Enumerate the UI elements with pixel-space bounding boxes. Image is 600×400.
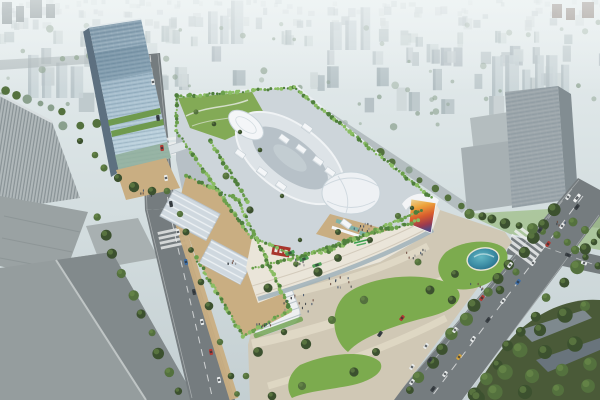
tree-highlight <box>198 279 201 282</box>
tree-highlight <box>472 392 479 399</box>
hedge-shrub <box>245 215 248 218</box>
hedge-shrub <box>254 88 257 91</box>
hedge-shrub <box>220 191 223 194</box>
tree-highlight <box>177 211 180 214</box>
hedge-shrub <box>258 266 260 268</box>
pedestrian <box>284 302 285 304</box>
pedestrian <box>266 323 267 325</box>
tree-highlight <box>228 373 231 376</box>
tree-highlight <box>368 237 371 240</box>
tree <box>92 119 101 128</box>
bg-tree <box>66 102 70 106</box>
hedge-shrub <box>281 314 284 317</box>
tree <box>406 166 413 173</box>
hedge-shrub <box>174 93 178 97</box>
tree-highlight <box>503 341 508 346</box>
tree-highlight <box>206 302 210 306</box>
tree-highlight <box>410 206 412 208</box>
tree-highlight <box>461 314 468 321</box>
hedge-shrub <box>216 92 219 95</box>
hedge-shrub <box>427 194 431 198</box>
hedge-shrub <box>231 315 233 317</box>
pedestrian <box>335 279 336 281</box>
tree-highlight <box>549 204 555 210</box>
hedge-shrub <box>183 140 185 142</box>
hedge-shrub <box>215 149 219 153</box>
hedge-shrub <box>273 246 275 248</box>
tree-highlight <box>335 255 339 259</box>
tree <box>76 122 84 130</box>
hedge-shrub <box>232 320 235 323</box>
pedestrian <box>482 288 483 290</box>
pedestrian <box>368 228 369 230</box>
tree-highlight <box>517 328 522 333</box>
pedestrian <box>302 307 303 309</box>
pedestrian <box>559 224 560 226</box>
tree-highlight <box>488 215 492 219</box>
hedge-shrub <box>307 98 310 101</box>
bg-tree <box>377 95 382 100</box>
pedestrian <box>371 225 372 227</box>
hedge-shrub <box>279 259 283 263</box>
hedge-shrub <box>316 106 319 109</box>
hedge-shrub <box>418 186 420 188</box>
hedge-shrub <box>194 255 199 260</box>
hedge-shrub <box>367 146 371 150</box>
hedge-shrub <box>201 169 205 173</box>
hedge-shrub <box>411 213 413 215</box>
tree-highlight <box>591 239 594 242</box>
pedestrian <box>329 277 330 279</box>
hedge-shrub <box>404 177 408 181</box>
hedge-shrub <box>313 252 316 255</box>
hedge-shrub <box>343 125 346 128</box>
pedestrian <box>367 223 368 225</box>
hedge-shrub <box>299 91 303 95</box>
hedge-shrub <box>273 262 275 264</box>
tree-highlight <box>94 214 98 218</box>
pedestrian <box>143 189 144 191</box>
tree-highlight <box>553 385 559 391</box>
tree-highlight <box>254 348 259 353</box>
hedge-shrub <box>292 257 295 260</box>
hedge-shrub <box>199 264 202 267</box>
tree-highlight <box>407 387 411 391</box>
tree-highlight <box>102 231 107 236</box>
hedge-shrub <box>194 178 196 180</box>
pedestrian <box>286 300 287 302</box>
aerial-render-image <box>0 0 600 400</box>
tree-highlight <box>92 152 95 155</box>
hedge-shrub <box>214 287 216 289</box>
hedge-shrub <box>249 225 251 227</box>
pedestrian <box>303 264 304 266</box>
hedge-shrub <box>175 117 178 120</box>
tree-highlight <box>583 254 586 257</box>
pedestrian <box>151 195 152 197</box>
hedge-shrub <box>228 91 232 95</box>
tree-highlight <box>494 361 499 366</box>
hedge-shrub <box>221 158 225 162</box>
hedge-shrub <box>398 226 400 228</box>
car <box>160 145 164 151</box>
pedestrian <box>422 253 423 255</box>
hedge-shrub <box>417 210 420 213</box>
tree-highlight <box>554 232 558 236</box>
bg-tree <box>390 123 397 130</box>
hedge-shrub <box>208 92 210 94</box>
hedge-shrub <box>368 233 370 235</box>
hedge-shrub <box>185 143 187 145</box>
tree-highlight <box>520 248 526 254</box>
car-glass <box>165 177 168 179</box>
hedge-shrub <box>239 189 244 194</box>
hedge-shrub <box>334 245 337 248</box>
pedestrian <box>359 227 360 229</box>
tree-highlight <box>449 296 453 300</box>
hedge-shrub <box>270 262 273 265</box>
hedge-shrub <box>275 246 279 250</box>
tree-highlight <box>489 386 497 394</box>
tree-highlight <box>539 346 546 353</box>
tree-highlight <box>108 249 113 254</box>
bg-tree <box>484 97 489 102</box>
hedge-shrub <box>345 128 348 131</box>
tree-highlight <box>543 294 547 298</box>
bg-building <box>365 98 374 113</box>
hedge-shrub <box>247 90 250 93</box>
tree-highlight <box>535 325 541 331</box>
hedge-shrub <box>420 188 423 191</box>
tree <box>417 177 423 183</box>
hedge-shrub <box>320 251 323 254</box>
hedge-shrub <box>255 266 257 268</box>
tree <box>23 95 32 104</box>
pedestrian <box>313 299 314 301</box>
hedge-shrub <box>409 222 413 226</box>
pedestrian <box>358 230 359 232</box>
tree-highlight <box>396 213 399 216</box>
hedge-shrub <box>198 94 202 98</box>
aerial-city-render <box>0 0 600 400</box>
pedestrian <box>360 225 361 227</box>
hedge-shrub <box>197 162 200 165</box>
hedge-shrub <box>267 88 270 91</box>
pedestrian <box>295 259 296 261</box>
tree-highlight <box>361 296 365 300</box>
hedge-shrub <box>282 258 286 262</box>
pedestrian <box>299 302 300 304</box>
hedge-shrub <box>238 187 240 189</box>
pedestrian <box>340 286 341 288</box>
tree-highlight <box>314 268 319 273</box>
pedestrian <box>425 250 426 252</box>
hedge-shrub <box>247 233 250 236</box>
hedge-shrub <box>250 236 253 239</box>
tree <box>58 108 65 115</box>
tree-highlight <box>373 349 377 353</box>
hedge-shrub <box>212 144 214 146</box>
hedge-shrub <box>416 218 420 222</box>
bg-tree <box>436 123 440 127</box>
pedestrian <box>269 322 270 324</box>
hedge-shrub <box>227 311 231 315</box>
hedge-shrub <box>229 209 233 213</box>
right-wing-block <box>461 141 515 212</box>
hedge-shrub <box>283 296 287 300</box>
pedestrian <box>261 326 262 328</box>
tree-highlight <box>329 317 333 321</box>
pedestrian <box>565 222 566 224</box>
pedestrian <box>148 195 149 197</box>
tree-highlight <box>115 175 119 179</box>
tree-highlight <box>415 259 419 263</box>
hedge-shrub <box>252 232 257 237</box>
pedestrian <box>303 294 304 296</box>
bg-building-side <box>489 96 494 115</box>
hedge-shrub <box>240 221 245 226</box>
pedestrian <box>232 262 233 264</box>
hedge-shrub <box>203 184 205 186</box>
tree <box>48 104 55 111</box>
pedestrian <box>348 277 349 279</box>
hedge-shrub <box>216 292 220 296</box>
hedge-shrub <box>335 120 338 123</box>
tree-highlight <box>582 227 586 231</box>
hedge-shrub <box>200 181 204 185</box>
hedge-shrub <box>184 174 188 178</box>
car-glass <box>161 147 164 149</box>
tree <box>432 185 439 192</box>
tree-highlight <box>595 263 599 267</box>
hedge-shrub <box>210 141 213 144</box>
hedge-shrub <box>194 157 198 161</box>
hedge-shrub <box>218 189 221 192</box>
hedge-shrub <box>276 87 279 90</box>
tree-highlight <box>101 165 105 169</box>
pedestrian <box>303 261 304 263</box>
tree-highlight <box>265 284 269 288</box>
hedge-shrub <box>375 153 377 155</box>
pedestrian <box>305 303 306 305</box>
hedge-shrub <box>232 91 234 93</box>
pedestrian <box>351 286 352 288</box>
pedestrian <box>311 303 312 305</box>
hedge-shrub <box>256 238 260 242</box>
hedge-shrub <box>261 240 264 243</box>
hedge-shrub <box>182 96 184 98</box>
hedge-shrub <box>295 88 297 90</box>
hedge-shrub <box>394 226 398 230</box>
hedge-shrub <box>221 161 226 166</box>
pedestrian <box>143 192 144 194</box>
car-glass <box>170 203 173 206</box>
tree-highlight <box>149 187 153 191</box>
tree-highlight <box>298 238 300 240</box>
hedge-shrub <box>311 100 315 104</box>
hedge-shrub <box>403 223 407 227</box>
car <box>156 115 160 121</box>
hedge-shrub <box>180 94 183 97</box>
pedestrian <box>264 325 265 327</box>
pedestrian <box>299 263 300 265</box>
pedestrian <box>362 229 363 231</box>
hedge-shrub <box>388 222 393 227</box>
hedge-shrub <box>196 260 198 262</box>
pedestrian <box>367 230 368 232</box>
hedge-shrub <box>176 109 178 111</box>
hedge-shrub <box>364 233 368 237</box>
tree-highlight <box>350 368 355 373</box>
hedge-shrub <box>398 170 401 173</box>
hedge-shrub <box>239 203 243 207</box>
pedestrian <box>365 223 366 225</box>
hedge-shrub <box>230 176 234 180</box>
tree-highlight <box>164 188 167 191</box>
right-main-windows <box>505 86 566 208</box>
hedge-shrub <box>352 237 357 242</box>
tree-highlight <box>165 368 170 373</box>
tree-highlight <box>572 246 576 250</box>
hedge-shrub <box>383 158 386 161</box>
hedge-shrub <box>221 300 224 303</box>
tree-highlight <box>569 337 577 345</box>
hedge-shrub <box>345 239 350 244</box>
pedestrian <box>414 255 415 257</box>
pedestrian <box>470 283 471 285</box>
tree-highlight <box>485 288 490 293</box>
hedge-shrub <box>235 182 240 187</box>
tree-highlight <box>118 270 123 275</box>
tree-highlight <box>189 248 192 251</box>
bg-building-side <box>409 92 412 111</box>
tree-highlight <box>446 329 452 335</box>
tree-highlight <box>581 244 587 250</box>
bg-tree <box>591 96 596 101</box>
hedge-shrub <box>360 140 362 142</box>
hedge-shrub <box>379 226 383 230</box>
tree-highlight <box>223 173 226 176</box>
car-glass <box>152 81 155 83</box>
tree-highlight <box>581 302 586 307</box>
pedestrian <box>420 252 421 254</box>
tree-highlight <box>299 383 303 387</box>
bg-tree <box>359 122 362 125</box>
hedge-shrub <box>430 196 433 199</box>
tree-highlight <box>557 365 563 371</box>
hedge-shrub <box>175 129 178 132</box>
pedestrian <box>480 286 481 288</box>
hedge-shrub <box>264 242 267 245</box>
tree-highlight <box>466 210 471 215</box>
tree-highlight <box>130 183 135 188</box>
hedge-shrub <box>245 229 248 232</box>
hedge-shrub <box>188 93 193 98</box>
pedestrian <box>330 283 331 285</box>
tree-highlight <box>336 230 339 233</box>
hedge-shrub <box>212 182 216 186</box>
hedge-shrub <box>272 272 277 277</box>
hedge-shrub <box>234 213 238 217</box>
tree-highlight <box>130 291 135 296</box>
tree-highlight <box>194 110 197 113</box>
tree <box>38 101 44 107</box>
hedge-shrub <box>413 219 416 222</box>
hedge-shrub <box>420 209 423 212</box>
tree-highlight <box>217 339 220 342</box>
hedge-shrub <box>277 315 280 318</box>
pedestrian <box>308 310 309 312</box>
hedge-shrub <box>230 171 233 174</box>
bg-tree <box>446 103 450 107</box>
pedestrian <box>413 257 414 259</box>
hedge-shrub <box>204 273 207 276</box>
pedestrian <box>363 225 364 227</box>
tree-highlight <box>258 148 260 150</box>
pedestrian <box>348 281 349 283</box>
bg-tree <box>358 102 361 105</box>
tree-highlight <box>438 344 444 350</box>
hedge-shrub <box>211 186 215 190</box>
hedge-shrub <box>393 168 395 170</box>
hedge-shrub <box>251 267 254 270</box>
pedestrian <box>406 252 407 254</box>
tree-highlight <box>302 340 307 345</box>
hedge-shrub <box>221 91 226 96</box>
tree-highlight <box>516 223 519 226</box>
hedge-shrub <box>220 297 224 301</box>
hedge-shrub <box>280 87 284 91</box>
tree-highlight <box>235 392 238 395</box>
tree-highlight <box>514 344 522 352</box>
pedestrian <box>262 325 263 327</box>
tree-highlight <box>183 229 187 233</box>
hedge-shrub <box>318 248 322 252</box>
hedge-shrub <box>256 88 259 91</box>
hedge-shrub <box>390 164 394 168</box>
pedestrian <box>294 296 295 298</box>
tree-highlight <box>212 122 214 124</box>
hedge-shrub <box>175 98 178 101</box>
hedge-shrub <box>241 225 245 229</box>
tree-highlight <box>585 358 592 365</box>
pedestrian <box>422 249 423 251</box>
hedge-shrub <box>408 179 410 181</box>
tree-highlight <box>269 392 273 396</box>
hedge-shrub <box>260 264 264 268</box>
tree-highlight <box>469 300 476 307</box>
hedge-shrub <box>219 93 221 95</box>
hedge-shrub <box>406 223 409 226</box>
tree-highlight <box>479 213 483 217</box>
hedge-shrub <box>229 206 232 209</box>
hedge-shrub <box>242 194 245 197</box>
pedestrian <box>233 260 234 262</box>
pedestrian <box>270 324 271 326</box>
hedge-shrub <box>238 90 241 93</box>
tree-highlight <box>452 271 456 275</box>
bg-tree <box>432 95 437 100</box>
pedestrian <box>235 263 236 265</box>
hedge-shrub <box>389 226 394 231</box>
hedge-shrub <box>241 335 245 339</box>
hedge-shrub <box>225 91 228 94</box>
pedestrian <box>340 276 341 278</box>
hedge-shrub <box>224 194 226 196</box>
hedge-shrub <box>224 165 229 170</box>
tree-highlight <box>532 312 537 317</box>
hedge-shrub <box>408 214 411 217</box>
